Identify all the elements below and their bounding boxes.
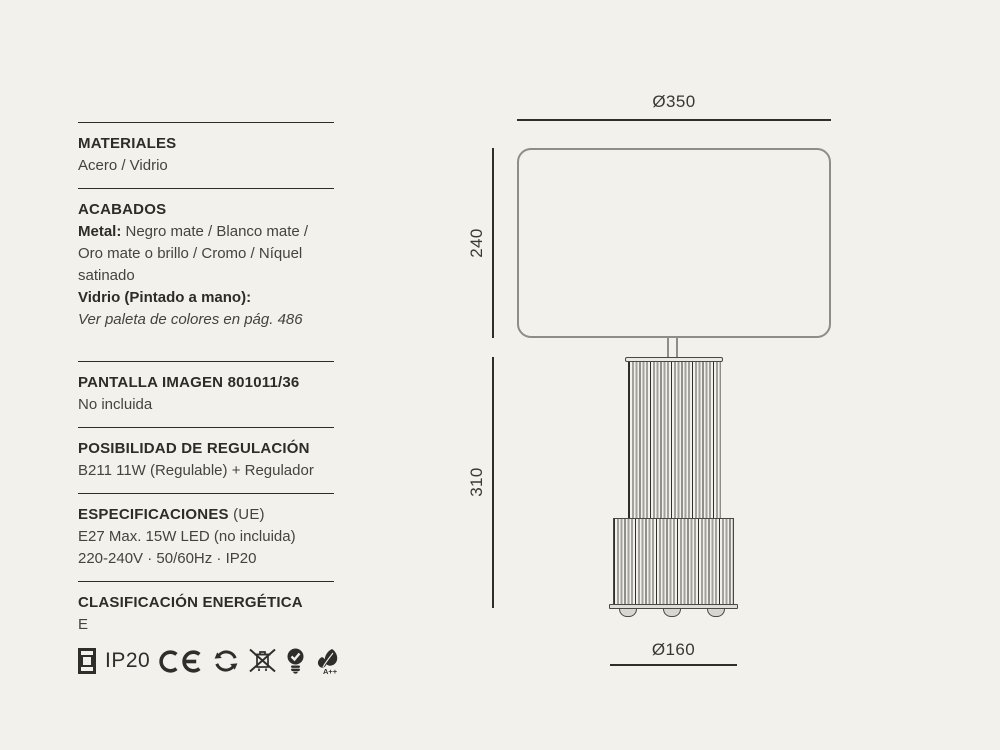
lamp-body-base	[613, 518, 734, 604]
dimension-body-height: 310	[467, 462, 487, 502]
dimension-line-body-height	[492, 357, 494, 608]
lamp-foot-left	[619, 609, 637, 617]
dimension-shade-diameter: Ø350	[517, 92, 831, 112]
lamp-foot-center	[663, 609, 681, 617]
lamp-body-upper	[628, 362, 721, 518]
lamp-shade-outline	[517, 148, 831, 338]
lamp-foot-right	[707, 609, 725, 617]
dimension-line-top	[517, 119, 831, 121]
dimension-shade-height: 240	[467, 223, 487, 263]
technical-drawing: Ø350 240 310 Ø160	[0, 0, 1000, 750]
dimension-base-diameter: Ø160	[610, 640, 737, 660]
dimension-line-shade-height	[492, 148, 494, 338]
lamp-stem	[667, 338, 678, 357]
dimension-line-bottom	[610, 664, 737, 666]
